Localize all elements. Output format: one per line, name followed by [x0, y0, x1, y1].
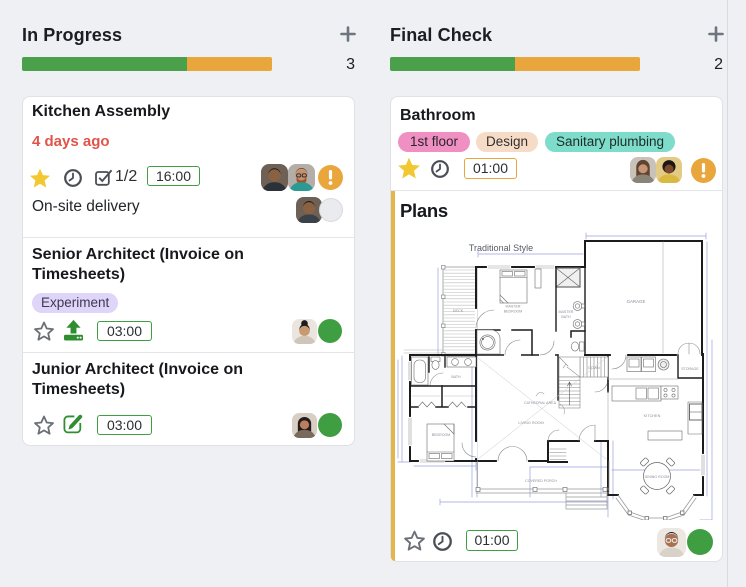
svg-text:DOWN: DOWN [588, 366, 600, 370]
svg-text:MASTER: MASTER [559, 310, 574, 314]
svg-text:BEDROOM: BEDROOM [504, 310, 523, 314]
svg-text:LIVING ROOM: LIVING ROOM [518, 421, 543, 425]
svg-text:BATH: BATH [451, 375, 461, 379]
svg-text:MASTER: MASTER [506, 305, 521, 309]
svg-text:BATH: BATH [561, 315, 571, 319]
svg-text:GARAGE: GARAGE [627, 299, 646, 304]
svg-text:CATHEDRAL AREA: CATHEDRAL AREA [524, 401, 557, 405]
svg-text:COVERED PORCH: COVERED PORCH [525, 479, 557, 483]
svg-text:Traditional Style: Traditional Style [469, 243, 533, 253]
svg-text:STORAGE: STORAGE [681, 367, 699, 371]
svg-text:DECK: DECK [453, 309, 464, 313]
svg-text:DINING ROOM: DINING ROOM [645, 475, 670, 479]
svg-text:KITCHEN: KITCHEN [644, 414, 661, 418]
svg-text:BEDROOM: BEDROOM [432, 433, 451, 437]
